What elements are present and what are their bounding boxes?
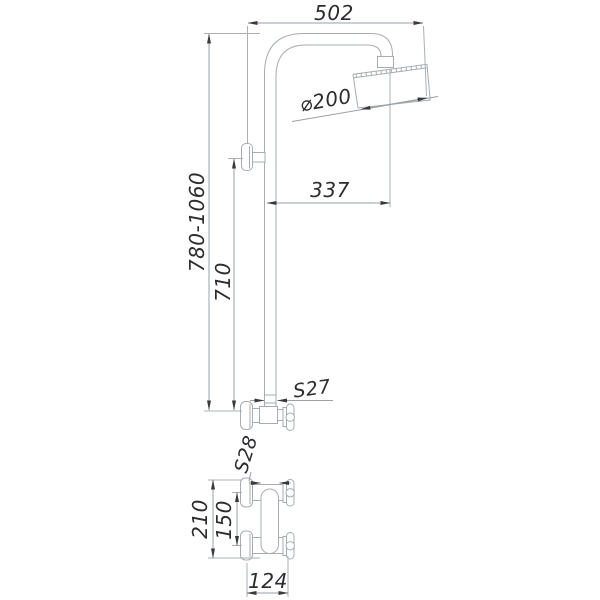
mixer-vertical-body (261, 489, 279, 554)
dim-label-head-diameter: ⌀200 (298, 84, 354, 117)
head-connector (378, 57, 394, 68)
valve-handle-hub (286, 413, 294, 421)
dim-label-mixer-nut-size: S28 (230, 433, 262, 476)
valve-body (260, 407, 278, 424)
shower-column-technical-drawing: 502 ⌀200 337 780-1060 710 S27 S28 210 15… (0, 0, 600, 600)
dim-label-riser-nut-size: S27 (292, 376, 332, 403)
fixture-geometry (241, 34, 431, 561)
valve-stem (278, 410, 284, 421)
mixer-top-handle-hub (286, 489, 294, 497)
mixer-top-flange (241, 478, 253, 507)
mixer-assembly (241, 478, 295, 560)
dim-label-mixer-overall-height: 210 (188, 499, 212, 539)
valve-flange (241, 402, 253, 430)
bracket-arm (253, 153, 266, 163)
dim-label-mixer-depth: 124 (248, 569, 288, 593)
diverter-valve (241, 402, 295, 431)
mixer-bottom-flange (241, 531, 253, 560)
dim-label-overall-height-range: 780-1060 (185, 172, 209, 272)
dim-label-mixer-centers-distance: 150 (212, 500, 236, 540)
valve-spacer (253, 409, 260, 423)
dim-label-head-offset: 337 (310, 178, 350, 202)
drawing-canvas: 502 ⌀200 337 780-1060 710 S27 S28 210 15… (0, 0, 600, 600)
dim-label-riser-height: 710 (211, 262, 235, 302)
dim-label-top-width: 502 (314, 1, 354, 25)
mixer-bottom-handle-hub (286, 542, 294, 550)
wall-bracket (242, 144, 266, 171)
bracket-flange (242, 144, 253, 171)
